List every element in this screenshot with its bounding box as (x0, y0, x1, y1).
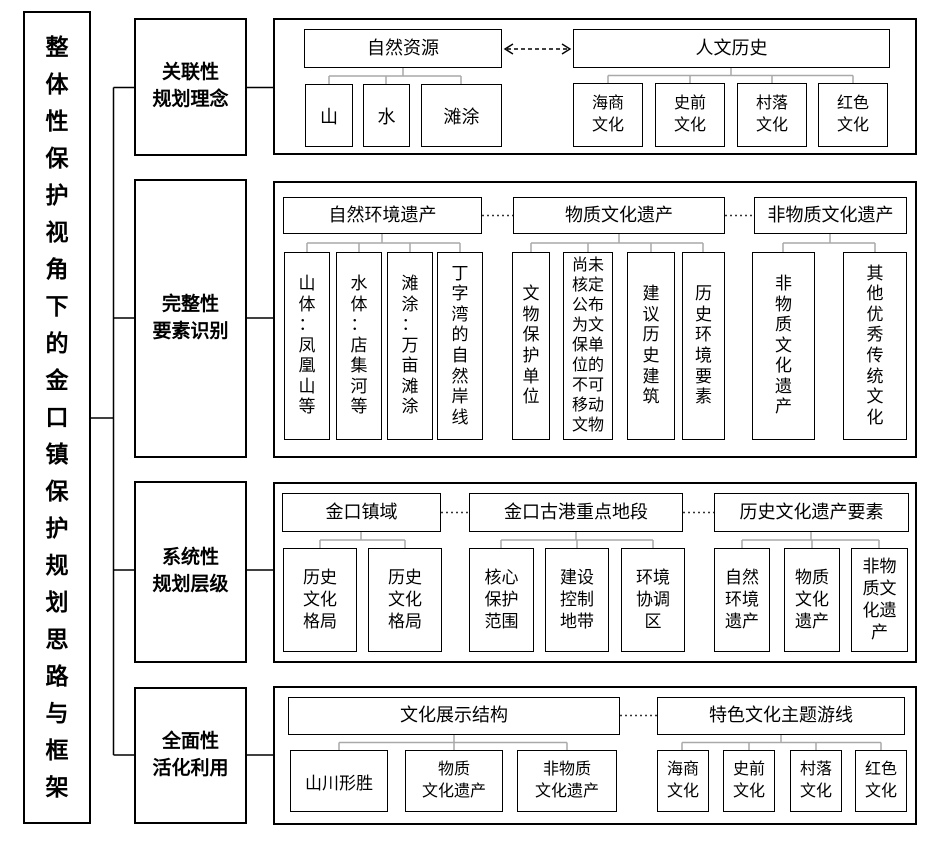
node-prehistoric-culture-p4: 史前 文化 (723, 750, 775, 812)
node-label: 其他优秀传统文化 (863, 264, 887, 429)
node-material-heritage-p3: 物质 文化 遗产 (784, 548, 840, 652)
hdr-label: 金口镇域 (326, 502, 398, 524)
node-label: 历史环境要素 (692, 284, 716, 407)
node-other-traditional-culture: 其他优秀传统文化 (843, 252, 907, 440)
node-label: 核心 保护 范围 (485, 567, 519, 633)
node-material-heritage-p4: 物质 文化遗产 (405, 750, 503, 812)
node-label: 建设 控制 地带 (560, 567, 594, 633)
node-label: 非物质文化遗产 (772, 274, 796, 418)
node-label: 滩涂 (444, 103, 480, 129)
planning-framework-diagram: 整体性保护视角下的金口镇保护规划思路与框架 关联性 规划理念 完整性 要素识别 … (0, 0, 951, 848)
hdr-label: 自然资源 (367, 38, 439, 60)
node-heritage-protection-units: 文物保护单位 (512, 252, 550, 440)
node-label: 文物保护单位 (519, 284, 543, 407)
node-prehistoric-culture: 史前 文化 (655, 83, 725, 147)
node-label: 水 (378, 103, 396, 129)
node-label: 山 (320, 103, 338, 129)
node-water-bodies: 水体：店集河等 (336, 252, 382, 440)
node-village-culture-p4: 村落 文化 (790, 750, 842, 812)
node-village-culture: 村落 文化 (737, 83, 807, 147)
node-label: 村落 文化 (800, 759, 832, 802)
hdr-culture-display-structure: 文化展示结构 (288, 697, 620, 735)
node-mountain: 山 (305, 84, 353, 147)
node-intangible-heritage-item: 非物质文化遗产 (752, 252, 815, 440)
hdr-human-history: 人文历史 (573, 29, 890, 68)
node-core-protection-scope: 核心 保护 范围 (469, 548, 534, 652)
node-label: 丁字湾的自然岸线 (448, 264, 472, 429)
section-comprehensive-utilization: 全面性 活化利用 (134, 687, 247, 824)
section-label: 系统性 规划层级 (152, 545, 228, 599)
section-label: 全面性 活化利用 (152, 729, 228, 783)
hdr-label: 自然环境遗产 (329, 205, 437, 227)
node-label: 环境 协调 区 (636, 567, 670, 633)
hdr-label: 人文历史 (696, 38, 768, 60)
node-label: 山体：凤凰山等 (295, 274, 319, 418)
section-label: 完整性 要素识别 (152, 292, 228, 346)
node-water: 水 (363, 84, 410, 147)
hdr-label: 非物质文化遗产 (768, 205, 894, 227)
hdr-heritage-elements: 历史文化遗产要素 (714, 493, 909, 532)
node-label: 自然 环境 遗产 (725, 567, 759, 633)
node-environment-coordination-zone: 环境 协调 区 (621, 548, 685, 652)
node-label: 非物质 文化遗产 (535, 759, 599, 802)
node-dingzi-bay-coastline: 丁字湾的自然岸线 (437, 252, 483, 440)
hdr-jinkou-port-key-area: 金口古港重点地段 (469, 493, 683, 532)
hdr-label: 金口古港重点地段 (504, 502, 648, 524)
node-label: 海商 文化 (592, 93, 624, 136)
node-label: 物质 文化 遗产 (795, 567, 829, 633)
node-label: 滩涂：万亩滩涂 (398, 274, 422, 418)
hdr-label: 文化展示结构 (400, 705, 508, 727)
node-historic-environment-elements: 历史环境要素 (682, 252, 725, 440)
node-label: 非物 质文 化遗 产 (863, 556, 897, 644)
node-maritime-culture-p4: 海商 文化 (657, 750, 709, 812)
node-construction-control-zone: 建设 控制 地带 (545, 548, 609, 652)
node-historic-cultural-pattern-1: 历史 文化 格局 (283, 548, 357, 652)
node-label: 海商 文化 (667, 759, 699, 802)
section-completeness-elements: 完整性 要素识别 (134, 179, 247, 458)
node-intangible-heritage-p3: 非物 质文 化遗 产 (851, 548, 908, 652)
node-label: 历史 文化 格局 (303, 567, 337, 633)
section-label: 关联性 规划理念 (152, 60, 228, 114)
node-label: 红色 文化 (837, 93, 869, 136)
hdr-themed-culture-routes: 特色文化主题游线 (657, 697, 905, 735)
node-intangible-heritage-p4: 非物质 文化遗产 (517, 750, 617, 812)
node-historic-cultural-pattern-2: 历史 文化 格局 (368, 548, 442, 652)
node-label: 史前 文化 (674, 93, 706, 136)
node-tidal-flat: 滩涂 (421, 84, 502, 147)
node-natural-env-heritage-p3: 自然 环境 遗产 (714, 548, 770, 652)
hdr-material-heritage: 物质文化遗产 (513, 197, 725, 234)
node-tidal-flats-wanmu: 滩涂：万亩滩涂 (387, 252, 433, 440)
node-red-culture-p4: 红色 文化 (855, 750, 907, 812)
node-label: 物质 文化遗产 (422, 759, 486, 802)
hdr-label: 物质文化遗产 (565, 205, 673, 227)
node-label: 尚未核定公布为文保单位的不可移动文物 (571, 256, 605, 436)
node-label: 山川形胜 (305, 769, 373, 794)
hdr-label: 特色文化主题游线 (709, 705, 853, 727)
section-relational-concept: 关联性 规划理念 (134, 18, 247, 156)
hdr-natural-resources: 自然资源 (304, 29, 502, 68)
node-label: 历史 文化 格局 (388, 567, 422, 633)
section-systematic-levels: 系统性 规划层级 (134, 481, 247, 663)
node-red-culture: 红色 文化 (818, 83, 888, 147)
node-landscape-features: 山川形胜 (290, 750, 388, 812)
main-title: 整体性保护视角下的金口镇保护规划思路与框架 (23, 11, 91, 824)
node-label: 建议历史建筑 (639, 284, 663, 407)
node-maritime-culture: 海商 文化 (573, 83, 643, 147)
node-unregistered-immovable-relics: 尚未核定公布为文保单位的不可移动文物 (563, 252, 613, 440)
hdr-jinkou-town-area: 金口镇域 (282, 493, 441, 532)
node-mountain-bodies: 山体：凤凰山等 (284, 252, 330, 440)
hdr-label: 历史文化遗产要素 (740, 502, 884, 524)
hdr-intangible-heritage: 非物质文化遗产 (754, 197, 907, 234)
node-label: 史前 文化 (733, 759, 765, 802)
node-label: 村落 文化 (756, 93, 788, 136)
main-title-label: 整体性保护视角下的金口镇保护规划思路与框架 (44, 29, 70, 806)
hdr-natural-env-heritage: 自然环境遗产 (283, 197, 482, 234)
node-label: 红色 文化 (865, 759, 897, 802)
node-label: 水体：店集河等 (347, 274, 371, 418)
node-proposed-historic-buildings: 建议历史建筑 (627, 252, 675, 440)
